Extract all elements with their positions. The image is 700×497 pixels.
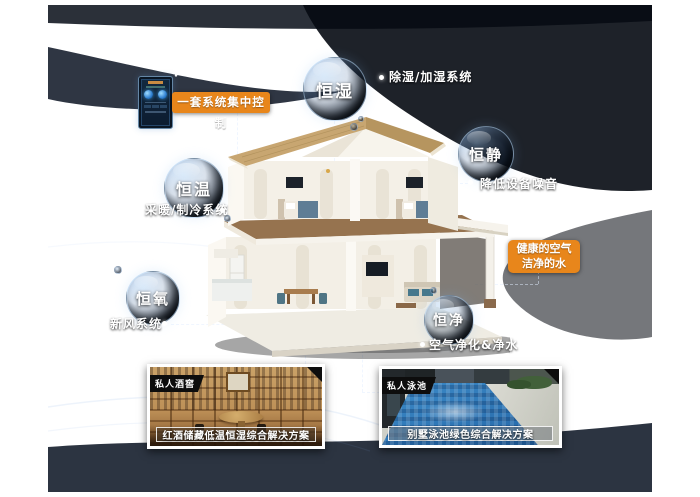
phone-text-line-2 <box>145 111 166 113</box>
card-wine-cellar: 私人酒窖 红酒储藏低温恒湿综合解决方案 <box>147 364 325 449</box>
smart-controller-phone <box>138 76 173 129</box>
connector-pool-card-h <box>362 392 380 393</box>
healthy-air-line: 健康的空气 <box>508 241 580 256</box>
phone-status-row <box>146 86 165 88</box>
dial-left <box>144 90 153 99</box>
healthy-air-water-label: 健康的空气 洁净的水 <box>508 240 580 273</box>
bubble-quiet: 恒静 <box>458 126 514 182</box>
phone-control-dials <box>142 90 169 99</box>
hedge <box>507 380 531 389</box>
note-dot-humidity <box>379 75 384 80</box>
central-control-label: 一套系统集中控制 <box>172 92 270 113</box>
mini-bubble <box>358 116 364 122</box>
note-dot-purity <box>420 342 425 347</box>
note-humidity-system: 除湿/加湿系统 <box>389 68 472 85</box>
tag-pool: 私人泳池 <box>382 377 436 394</box>
note-purity-system: 空气净化&净水 <box>429 336 518 353</box>
note-oxygen-system: 新风系统 <box>110 315 162 332</box>
caption-pool: 别墅泳池绿色综合解决方案 <box>388 426 553 441</box>
mini-bubble <box>114 266 122 274</box>
bubble-humidity: 恒湿 <box>303 57 367 121</box>
water-reflection <box>424 401 484 422</box>
note-dot-quiet <box>468 180 473 185</box>
tag-wine-cellar: 私人酒窖 <box>150 375 204 392</box>
note-temperature-system: 采暖/制冷系统 <box>145 201 228 218</box>
wifi-icon <box>166 61 186 77</box>
dial-right <box>158 90 167 99</box>
note-dot-temperature <box>220 208 225 213</box>
pool-photo: 私人泳池 别墅泳池绿色综合解决方案 <box>382 369 559 445</box>
mini-bubble <box>350 123 358 131</box>
note-quiet-system: 降低设备噪音 <box>480 175 558 192</box>
phone-screen <box>141 79 170 126</box>
phone-text-line <box>145 102 166 104</box>
note-dot-oxygen <box>162 321 167 326</box>
phone-screen-header <box>148 81 163 84</box>
phone-button-row <box>144 105 167 108</box>
clean-water-line: 洁净的水 <box>508 256 580 271</box>
wall-picture <box>226 372 250 392</box>
caption-wine-cellar: 红酒储藏低温恒湿综合解决方案 <box>156 427 316 442</box>
infographic-canvas: 一套系统集中控制 健康的空气 洁净的水 恒湿 恒静 恒温 恒氧 恒净 除湿/加湿… <box>48 5 652 492</box>
wine-cellar-photo: 私人酒窖 红酒储藏低温恒湿综合解决方案 <box>150 367 322 446</box>
card-pool: 私人泳池 别墅泳池绿色综合解决方案 <box>379 366 562 448</box>
mini-bubble <box>430 287 437 294</box>
